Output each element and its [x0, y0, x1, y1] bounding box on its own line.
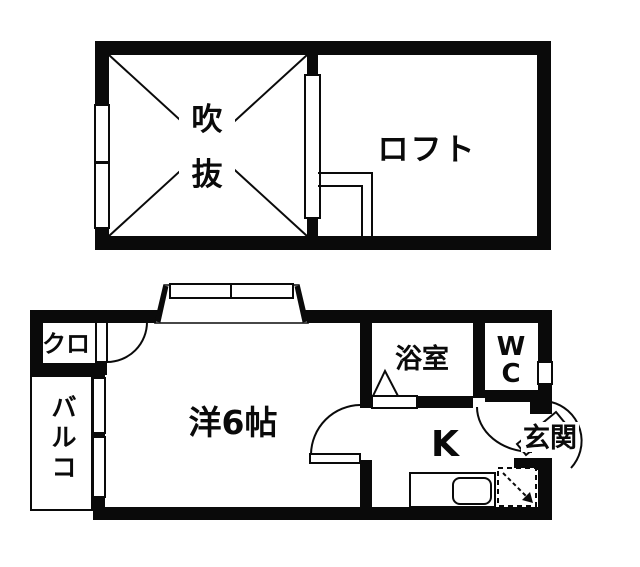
- void-left-window-lower: [95, 163, 109, 228]
- kitchen-door-arc: [311, 405, 360, 454]
- entrance-wall-stub-top: [530, 400, 545, 414]
- bath-bottom-wall: [416, 396, 473, 408]
- floor-plan-page: 吹 抜 ロフト: [0, 0, 640, 567]
- floor-plan-canvas: 吹 抜 ロフト: [0, 0, 640, 567]
- western-room-label: 洋6帖: [189, 403, 278, 442]
- balcony-label-char3: コ: [51, 453, 76, 482]
- balcony-window-lower: [93, 437, 105, 497]
- bath-wc-divider-wall: [473, 323, 485, 398]
- upper-floor-plan: 吹 抜 ロフト: [95, 41, 551, 250]
- balcony-window-upper: [93, 378, 105, 433]
- entrance-label: 玄関: [523, 422, 577, 454]
- closet-bottom-wall: [30, 363, 107, 375]
- lower-floor-plan: クロ バ ル コ 洋6帖 浴室 W C K 玄関: [30, 284, 582, 520]
- closet-label: クロ: [42, 330, 90, 358]
- closet-door-leaf: [96, 322, 107, 362]
- kitchen-door-opening: [360, 408, 372, 460]
- kitchen-door-leaf: [310, 454, 360, 463]
- void-room-label-line2: 抜: [192, 157, 223, 193]
- balcony-label-char2: ル: [51, 423, 76, 452]
- void-left-window-upper: [95, 105, 109, 162]
- wc-side-window: [538, 362, 552, 384]
- upper-divider-window: [305, 75, 320, 218]
- loft-label: ロフト: [378, 132, 477, 168]
- bathroom-label: 浴室: [395, 343, 449, 375]
- lower-bottom-wall: [93, 507, 552, 520]
- kitchen-sink: [453, 478, 491, 504]
- void-room-label-line1: 吹: [192, 102, 223, 138]
- bath-door-step: [372, 396, 417, 408]
- toilet-label-char2: C: [501, 359, 520, 389]
- toilet-label-char1: W: [497, 332, 526, 362]
- balcony-label-char1: バ: [51, 393, 76, 422]
- closet-door-arc: [107, 322, 147, 362]
- kitchen-label: K: [431, 424, 460, 465]
